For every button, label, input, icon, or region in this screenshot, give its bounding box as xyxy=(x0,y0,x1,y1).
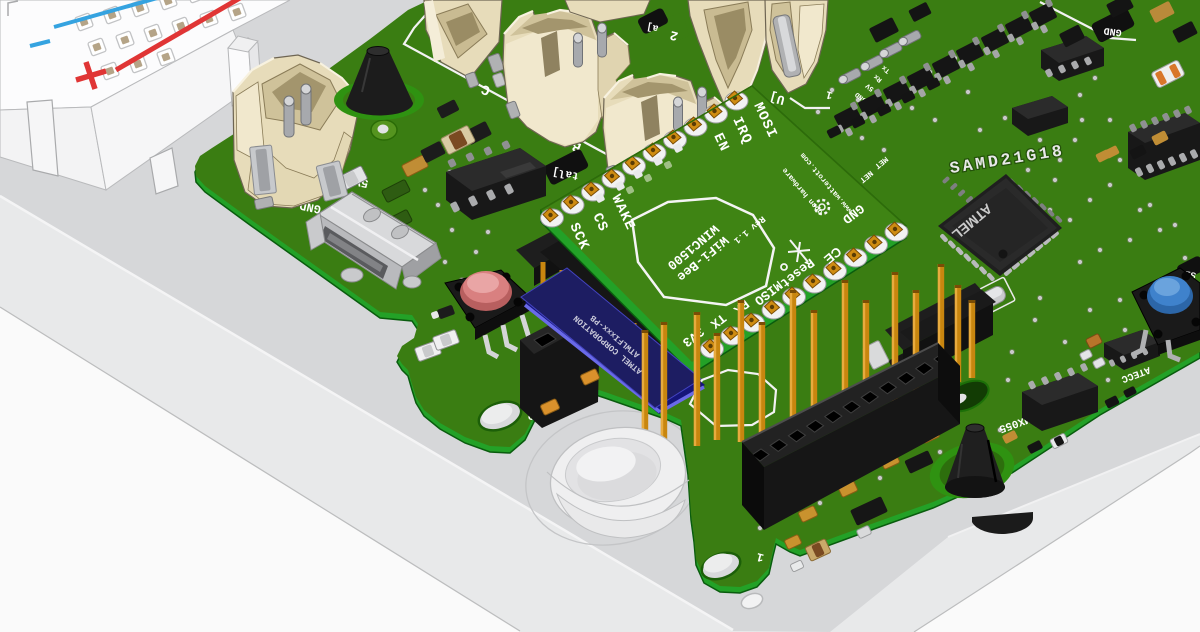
svg-text:GND: GND xyxy=(1103,24,1122,37)
svg-text:a]: a] xyxy=(646,20,660,34)
